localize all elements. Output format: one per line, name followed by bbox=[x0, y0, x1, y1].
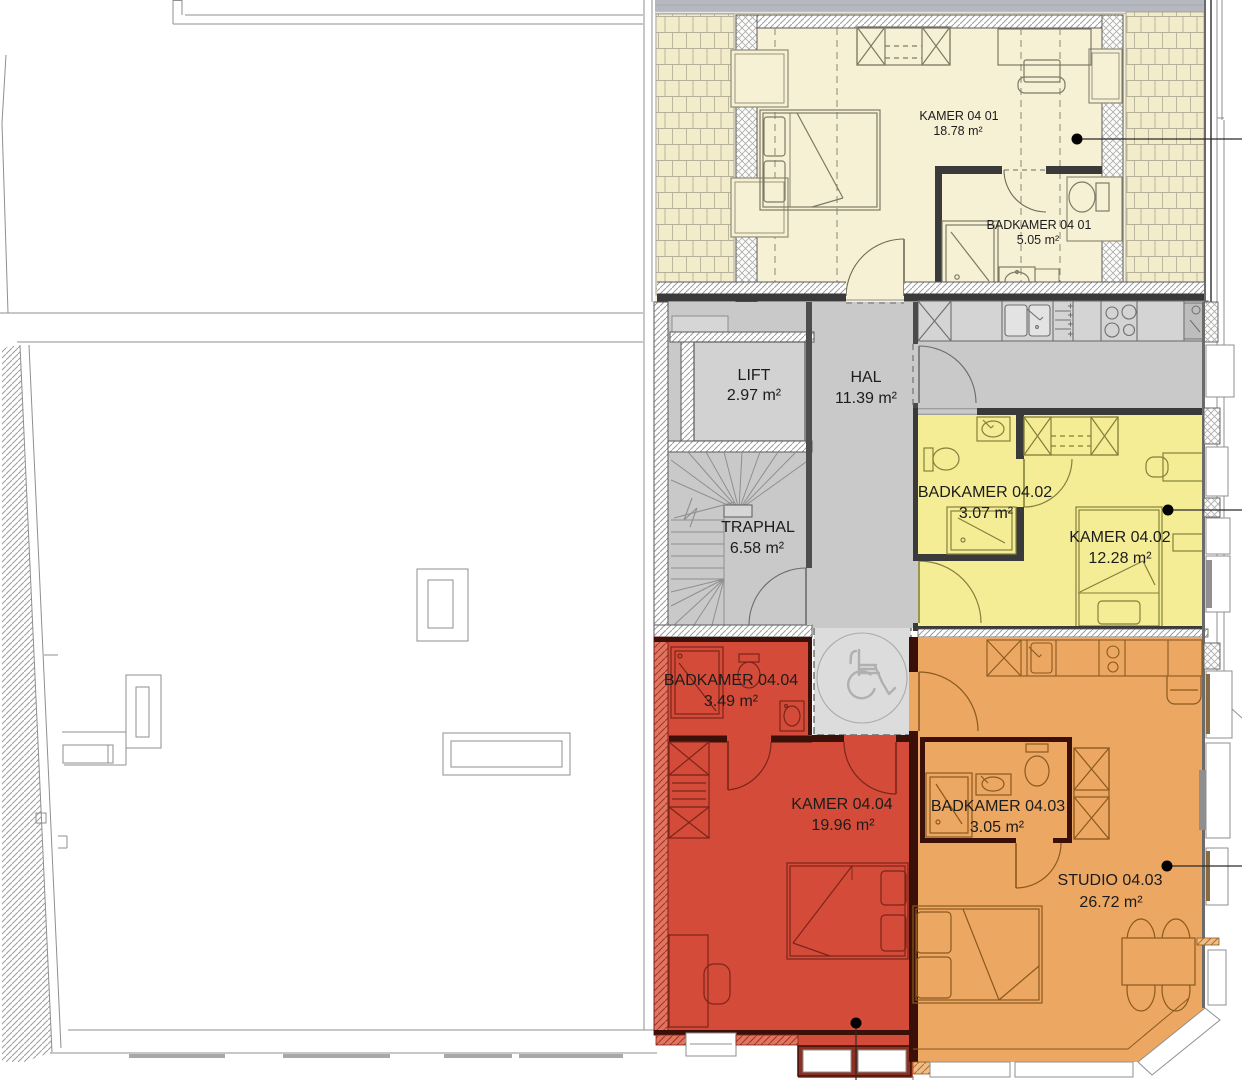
svg-text:HAL: HAL bbox=[850, 369, 881, 386]
svg-text:KAMER 04.02: KAMER 04.02 bbox=[1069, 529, 1170, 546]
svg-text:BADKAMER 04.04: BADKAMER 04.04 bbox=[664, 672, 798, 689]
svg-text:19.96 m²: 19.96 m² bbox=[811, 817, 875, 834]
svg-text:18.78 m²: 18.78 m² bbox=[933, 124, 982, 138]
svg-text:6.58 m²: 6.58 m² bbox=[730, 540, 785, 557]
svg-text:TRAPHAL: TRAPHAL bbox=[721, 519, 795, 536]
svg-text:BADKAMER 04.03: BADKAMER 04.03 bbox=[931, 798, 1065, 815]
svg-text:BADKAMER 04 01: BADKAMER 04 01 bbox=[987, 218, 1092, 232]
svg-text:BADKAMER 04.02: BADKAMER 04.02 bbox=[918, 484, 1052, 501]
svg-text:3.49 m²: 3.49 m² bbox=[704, 693, 759, 710]
svg-text:3.05 m²: 3.05 m² bbox=[970, 819, 1025, 836]
svg-text:3.07 m²: 3.07 m² bbox=[959, 505, 1014, 522]
svg-text:11.39 m²: 11.39 m² bbox=[835, 390, 898, 407]
svg-text:2.97 m²: 2.97 m² bbox=[727, 387, 782, 404]
svg-text:5.05 m²: 5.05 m² bbox=[1017, 233, 1059, 247]
svg-text:KAMER 04.04: KAMER 04.04 bbox=[791, 796, 892, 813]
svg-text:KAMER 04 01: KAMER 04 01 bbox=[919, 109, 998, 123]
svg-text:12.28 m²: 12.28 m² bbox=[1088, 550, 1152, 567]
svg-text:LIFT: LIFT bbox=[738, 367, 771, 384]
svg-text:STUDIO 04.03: STUDIO 04.03 bbox=[1058, 872, 1163, 889]
svg-text:26.72 m²: 26.72 m² bbox=[1079, 894, 1143, 911]
